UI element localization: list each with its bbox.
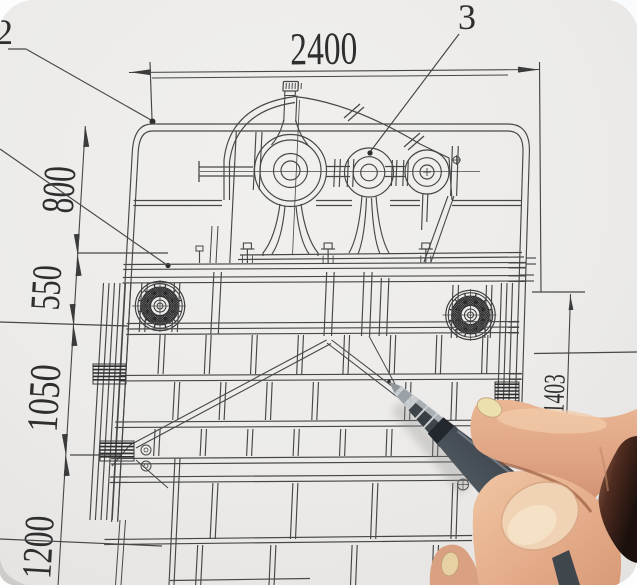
svg-text:3: 3 bbox=[458, 0, 476, 37]
svg-text:2400: 2400 bbox=[290, 22, 358, 74]
svg-text:1403: 1403 bbox=[537, 374, 572, 414]
svg-text:1050: 1050 bbox=[18, 363, 70, 433]
svg-text:1200: 1200 bbox=[14, 514, 64, 580]
svg-text:550: 550 bbox=[22, 264, 71, 311]
